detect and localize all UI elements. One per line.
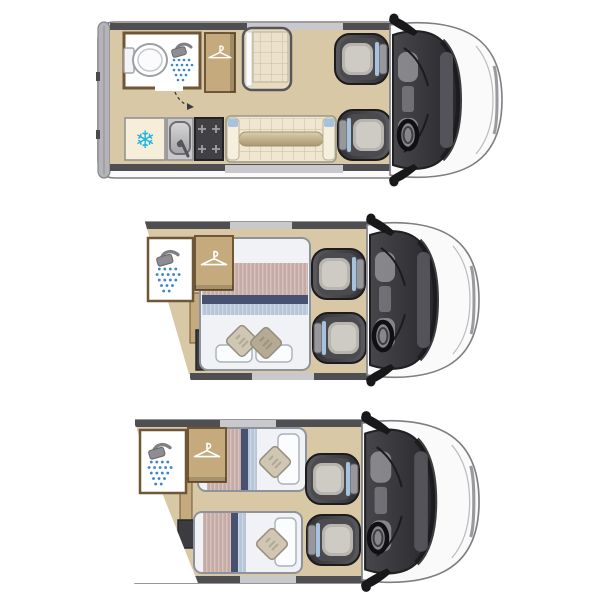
travel-seat (243, 28, 291, 90)
floorplan-day-layout: ❄ (96, 14, 502, 187)
blanket-blue (202, 304, 308, 315)
rear-facing-swivel-seat (312, 249, 365, 299)
blanket-blue (248, 429, 257, 490)
blanket-navy (241, 429, 248, 490)
rear-facing-swivel-seat (335, 34, 388, 84)
blanket-blue (238, 513, 246, 572)
wardrobe (205, 33, 235, 92)
blanket-mauve (203, 513, 231, 572)
hob (195, 118, 223, 160)
blanket-navy (202, 295, 308, 304)
cab (366, 214, 479, 387)
floorplan-double-bed-layout (90, 205, 479, 395)
floorplans-canvas: ❄ (0, 0, 600, 600)
sofa-bench (226, 116, 336, 162)
sink (167, 118, 193, 160)
wardrobe (188, 428, 226, 482)
floorplan-twin-beds-layout (90, 400, 479, 592)
driver-seat (313, 313, 366, 363)
shower-room (148, 238, 193, 301)
cab (389, 14, 502, 187)
shower-room (140, 430, 186, 493)
rear-facing-swivel-seat (306, 454, 359, 504)
wardrobe (195, 236, 233, 290)
fridge: ❄ (125, 118, 165, 160)
driver-seat (338, 110, 391, 160)
driver-seat (307, 515, 360, 565)
kitchen: ❄ (125, 118, 223, 160)
single-bed-bottom (194, 512, 302, 573)
toilet (124, 44, 167, 76)
blanket-navy (231, 513, 238, 572)
rear-doors (96, 22, 110, 178)
snowflake-icon: ❄ (135, 126, 155, 154)
cab (361, 411, 479, 592)
